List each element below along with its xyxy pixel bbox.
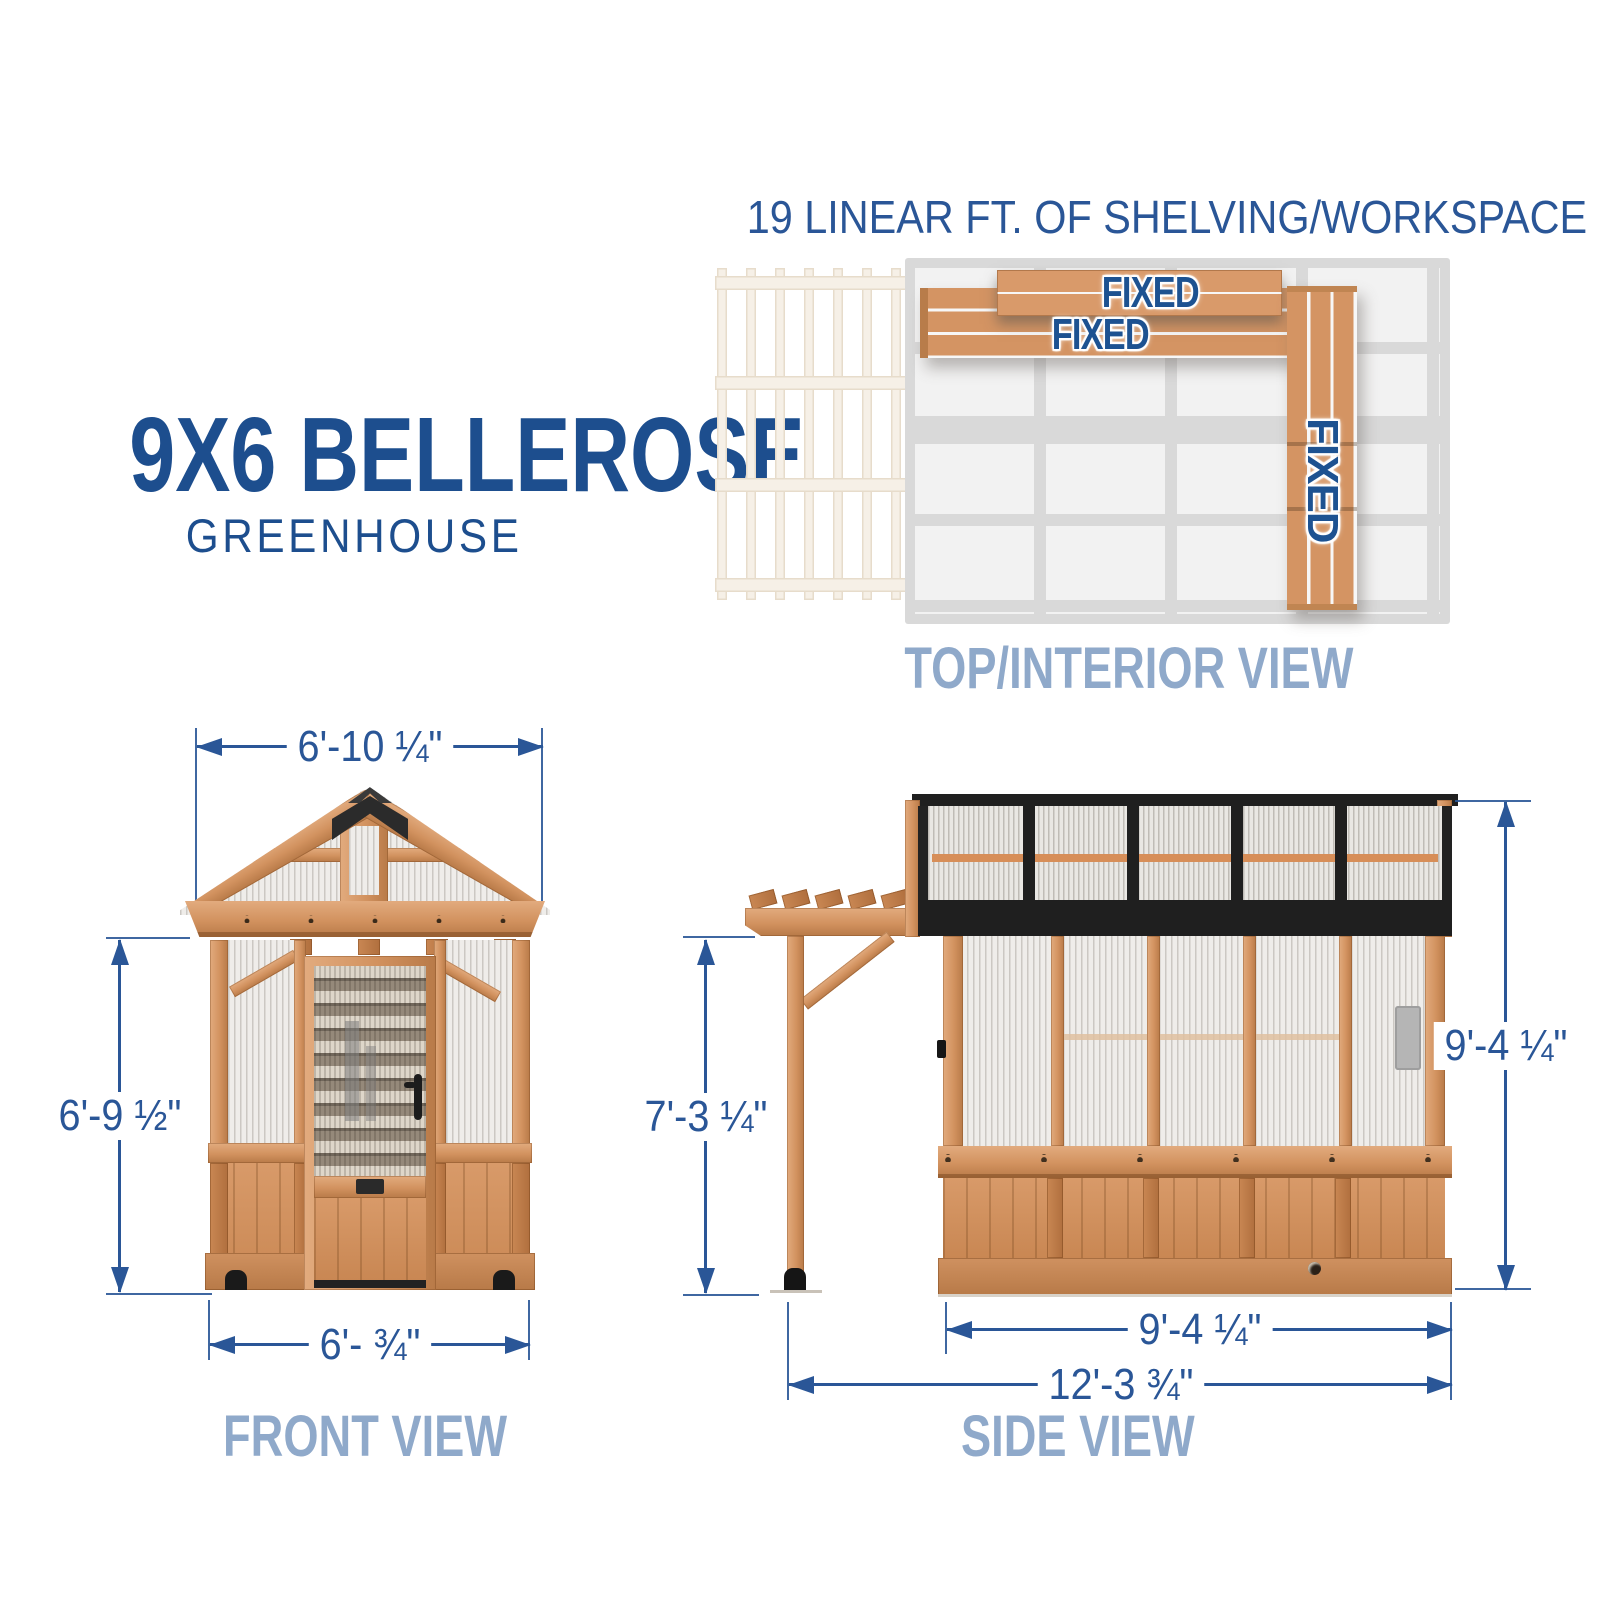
- front-dim-width-bottom: 6'- ¾": [210, 1343, 530, 1346]
- product-name-text: 9X6 BELLEROSE: [129, 402, 804, 508]
- side-ext-pergola-bottom: [683, 1294, 759, 1296]
- side-wall-post: [1147, 936, 1160, 1146]
- side-view-illustration: 7'-3 ¼" 9'-4 ¼" 9'-4 ¼" 12'-3 ¾": [650, 780, 1570, 1440]
- interior-rail: [1058, 1034, 1348, 1040]
- door-handle-lever: [404, 1082, 416, 1088]
- front-view-caption: FRONT VIEW: [105, 1408, 625, 1466]
- pergola-rafter-tail: [749, 889, 778, 910]
- side-ground-line: [938, 1294, 1452, 1297]
- front-foot-right: [493, 1270, 515, 1290]
- pergola-post: [787, 936, 804, 1291]
- front-door: [304, 956, 436, 1290]
- side-roof-cap: [912, 794, 1458, 806]
- side-dim-pergola-height: 7'-3 ¼": [704, 940, 707, 1293]
- drain-port: [1308, 1262, 1321, 1275]
- vent-hardware: [1395, 1006, 1421, 1070]
- pergola-base-plate: [770, 1290, 822, 1293]
- front-ext-ground: [106, 1293, 212, 1295]
- pergola-rafter-tail: [782, 889, 811, 910]
- pergola-post-foot: [784, 1268, 806, 1292]
- side-dim-total-height: 9'-4 ¼": [1504, 802, 1507, 1290]
- side-lower-wall: [943, 1178, 1445, 1258]
- side-wall-post: [1051, 936, 1064, 1146]
- greenhouse-dimension-diagram: 9X6 BELLEROSE GREENHOUSE 19 LINEAR FT. O…: [0, 0, 1600, 1600]
- door-mid-rail: [314, 1176, 426, 1198]
- door-handle: [414, 1074, 422, 1120]
- front-foot-left: [225, 1270, 247, 1290]
- page-title: 9X6 BELLEROSE: [34, 402, 674, 508]
- side-sill-band: [938, 1146, 1452, 1178]
- door-threshold: [314, 1280, 426, 1288]
- front-dim-height-left: 6'-9 ½": [118, 940, 121, 1292]
- side-wall-glazing: [943, 936, 1445, 1146]
- door-lower-panel: [314, 1198, 426, 1280]
- side-dim-total-width: 12'-3 ¾": [789, 1383, 1452, 1386]
- side-view-caption: SIDE VIEW: [818, 1408, 1338, 1466]
- top-view-caption: TOP/INTERIOR VIEW: [841, 640, 1361, 698]
- roof-mullion: [1335, 806, 1347, 902]
- side-ext-base-right: [1455, 1288, 1531, 1290]
- shelf-label-fixed-side: FIXED: [1289, 380, 1355, 580]
- door-mesh-window: [314, 966, 426, 1176]
- front-dim-width-top: 6'-10 ¼": [197, 745, 543, 748]
- roof-mullion: [1231, 806, 1243, 902]
- shelf-label-fixed-top: FIXED: [1065, 272, 1235, 314]
- roof-mullion: [1127, 806, 1139, 902]
- interior-shelf-through-roof: [932, 854, 1438, 862]
- pergola-brace: [800, 932, 895, 1010]
- page-subtitle: GREENHOUSE: [34, 512, 674, 559]
- product-type-text: GREENHOUSE: [186, 512, 523, 559]
- front-view-illustration: 6'-10 ¼": [100, 718, 600, 1378]
- door-plate: [356, 1179, 384, 1194]
- top-interior-view-illustration: FIXED FIXED FIXED: [715, 250, 1455, 628]
- rafter-tail: [358, 939, 380, 955]
- shelving-heading: 19 LINEAR FT. OF SHELVING/WORKSPACE: [700, 192, 1480, 243]
- shelf-label-fixed-wide: FIXED: [1015, 314, 1185, 356]
- side-roof-glazing: [918, 806, 1452, 902]
- side-door-handle: [937, 1040, 946, 1058]
- pergola-top-view: [715, 268, 907, 600]
- side-ext-pergola-top: [683, 936, 755, 938]
- side-dim-body-width: 9'-4 ¼": [947, 1328, 1452, 1331]
- side-ext-roof-top: [1455, 800, 1531, 802]
- side-wall-post: [1339, 936, 1352, 1146]
- pergola-rafter-tail: [848, 889, 877, 910]
- side-roof-fascia: [918, 900, 1452, 936]
- roof-mullion: [1023, 806, 1035, 902]
- front-eave-beam: [185, 901, 545, 937]
- side-base-skirt: [938, 1258, 1452, 1295]
- pergola-rafter-tail: [815, 889, 844, 910]
- side-corner-post-front: [943, 936, 963, 1146]
- floor-plan-walkway: [905, 416, 1450, 444]
- front-roof: [180, 790, 550, 915]
- side-wall-post: [1243, 936, 1256, 1146]
